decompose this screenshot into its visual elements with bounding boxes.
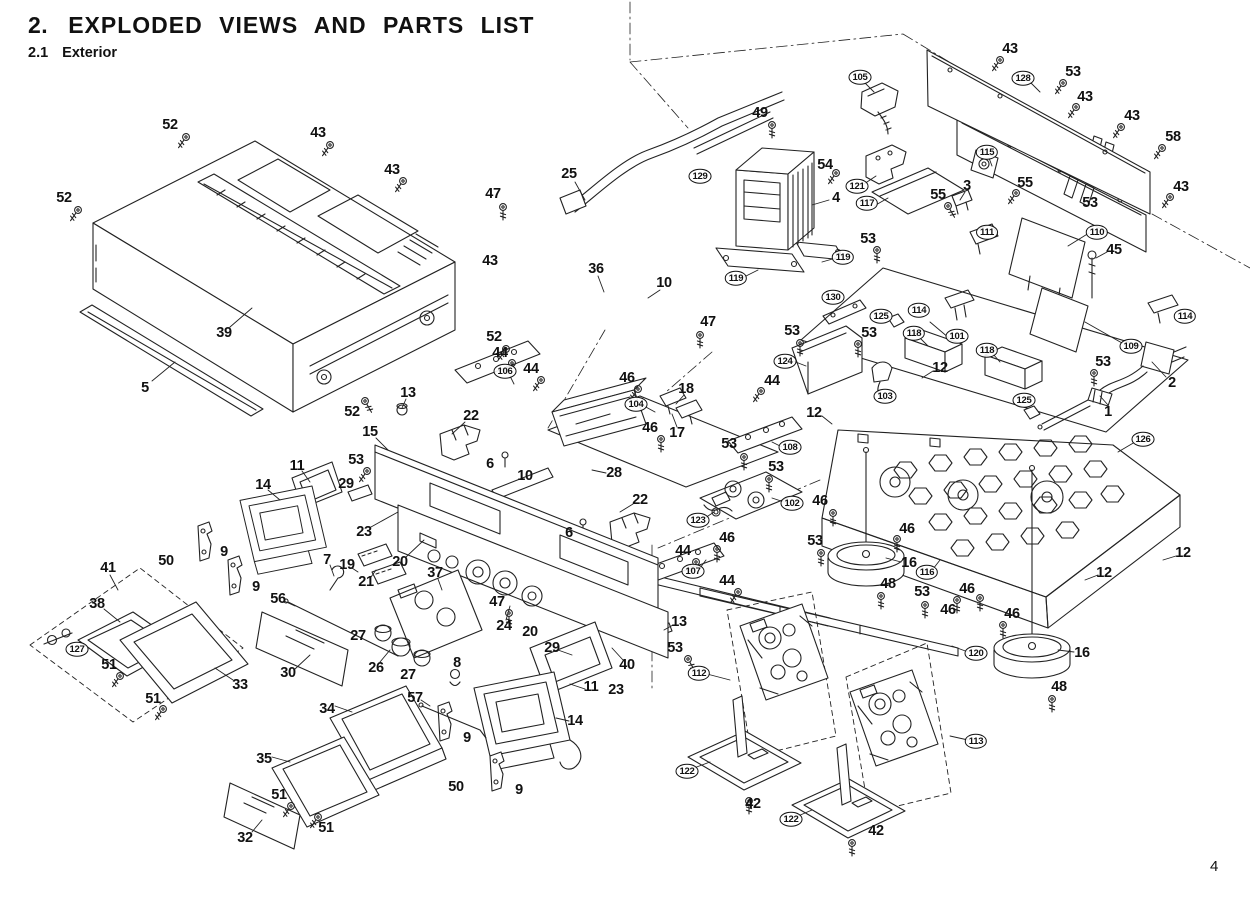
circled-part-number: 107 — [682, 564, 705, 579]
part-number: 9 — [252, 580, 260, 595]
circled-part-number: 113 — [965, 734, 987, 749]
circled-part-number: 112 — [688, 666, 710, 681]
part-number: 55 — [930, 188, 946, 203]
circled-part-number: 108 — [779, 440, 802, 455]
part-number: 14 — [567, 714, 583, 729]
subsection-title: Exterior — [62, 45, 117, 61]
circled-part-number: 114 — [1174, 309, 1196, 324]
part-number: 10 — [656, 276, 672, 291]
part-number: 49 — [752, 106, 768, 121]
circled-part-number: 111 — [976, 225, 998, 240]
part-number: 53 — [860, 232, 876, 247]
part-number: 27 — [350, 629, 366, 644]
part-number: 33 — [232, 678, 248, 693]
part-number: 40 — [619, 658, 635, 673]
part-number: 32 — [237, 831, 253, 846]
part-number: 53 — [784, 324, 800, 339]
page-header: 2. EXPLODED VIEWS AND PARTS LIST 2.1 Ext… — [28, 12, 534, 61]
circled-part-number: 110 — [1086, 225, 1108, 240]
part-number: 16 — [1074, 646, 1090, 661]
part-number: 37 — [427, 566, 443, 581]
part-number: 55 — [1017, 176, 1033, 191]
circled-part-number: 106 — [494, 364, 517, 379]
part-number: 56 — [270, 592, 286, 607]
part-number: 11 — [290, 459, 305, 474]
part-number: 35 — [256, 752, 272, 767]
part-number: 46 — [940, 603, 956, 618]
part-number: 12 — [1175, 546, 1191, 561]
part-number: 52 — [486, 330, 502, 345]
part-number: 44 — [675, 544, 691, 559]
part-number: 6 — [486, 457, 494, 472]
circled-part-number: 115 — [976, 145, 998, 160]
page-number: 4 — [1210, 858, 1218, 875]
part-number: 58 — [1165, 130, 1181, 145]
part-number: 39 — [216, 326, 232, 341]
part-number: 46 — [899, 522, 915, 537]
part-number: 43 — [1173, 180, 1189, 195]
circled-part-number: 122 — [780, 812, 803, 827]
part-number: 12 — [932, 361, 948, 376]
part-number: 51 — [271, 788, 287, 803]
part-number: 47 — [700, 315, 716, 330]
part-number: 21 — [358, 575, 374, 590]
part-number: 46 — [719, 531, 735, 546]
part-number: 7 — [323, 553, 331, 568]
part-number: 53 — [1095, 355, 1111, 370]
part-number: 44 — [523, 362, 539, 377]
part-number: 46 — [642, 421, 658, 436]
circled-part-number: 126 — [1132, 432, 1155, 447]
page-title: EXPLODED VIEWS AND PARTS LIST — [68, 12, 534, 39]
part-number: 43 — [1077, 90, 1093, 105]
circled-part-number: 125 — [870, 309, 893, 324]
part-number: 10 — [517, 469, 533, 484]
circled-part-number: 128 — [1012, 71, 1035, 86]
circled-part-number: 114 — [908, 303, 930, 318]
circled-part-number: 101 — [946, 329, 969, 344]
part-number: 45 — [1106, 243, 1122, 258]
part-number: 23 — [356, 525, 372, 540]
part-number: 46 — [812, 494, 828, 509]
part-number: 47 — [485, 187, 501, 202]
part-number: 9 — [463, 731, 471, 746]
part-number: 28 — [606, 466, 622, 481]
circled-part-number: 124 — [774, 354, 797, 369]
part-number: 24 — [496, 619, 512, 634]
part-number: 25 — [561, 167, 577, 182]
part-number: 15 — [362, 425, 378, 440]
part-number: 20 — [522, 625, 538, 640]
part-number: 51 — [318, 821, 334, 836]
subsection-number: 2.1 — [28, 45, 48, 61]
part-number: 1 — [1104, 405, 1112, 420]
part-number: 5 — [141, 381, 149, 396]
part-number: 18 — [678, 382, 694, 397]
part-number: 27 — [400, 668, 416, 683]
part-number: 2 — [1168, 376, 1176, 391]
part-number: 8 — [453, 656, 461, 671]
part-number: 11 — [584, 680, 599, 695]
part-number: 29 — [544, 641, 560, 656]
part-number: 53 — [721, 437, 737, 452]
part-number: 47 — [489, 595, 505, 610]
part-number: 4 — [832, 191, 840, 206]
part-number: 13 — [671, 615, 687, 630]
part-number: 38 — [89, 597, 105, 612]
part-number: 41 — [100, 561, 116, 576]
part-number: 48 — [1051, 680, 1067, 695]
part-number: 14 — [255, 478, 271, 493]
part-number: 53 — [768, 460, 784, 475]
part-number: 53 — [667, 641, 683, 656]
part-number: 9 — [515, 783, 523, 798]
part-number: 53 — [914, 585, 930, 600]
part-number: 43 — [1002, 42, 1018, 57]
circled-part-number: 118 — [976, 343, 998, 358]
part-number: 50 — [158, 554, 174, 569]
part-number: 17 — [669, 426, 685, 441]
part-number: 44 — [492, 346, 508, 361]
circled-part-number: 127 — [66, 642, 89, 657]
part-number: 43 — [310, 126, 326, 141]
part-number: 43 — [1124, 109, 1140, 124]
part-number: 9 — [220, 545, 228, 560]
part-number: 42 — [868, 824, 884, 839]
part-number: 53 — [807, 534, 823, 549]
part-number: 57 — [407, 691, 423, 706]
circled-part-number: 117 — [856, 196, 878, 211]
part-number: 52 — [56, 191, 72, 206]
circled-part-number: 129 — [689, 169, 712, 184]
part-number: 44 — [719, 574, 735, 589]
circled-part-number: 116 — [916, 565, 938, 580]
circled-part-number: 105 — [849, 70, 872, 85]
part-number: 48 — [880, 577, 896, 592]
part-number: 26 — [368, 661, 384, 676]
part-number: 52 — [162, 118, 178, 133]
circled-part-number: 102 — [781, 496, 804, 511]
part-number: 23 — [608, 683, 624, 698]
part-number: 12 — [806, 406, 822, 421]
part-number: 46 — [1004, 607, 1020, 622]
part-number: 42 — [745, 797, 761, 812]
section-number: 2. — [28, 12, 48, 39]
circled-part-number: 122 — [676, 764, 699, 779]
part-number: 12 — [1096, 566, 1112, 581]
circled-part-number: 119 — [725, 271, 747, 286]
part-number: 13 — [400, 386, 416, 401]
part-number: 36 — [588, 262, 604, 277]
part-number: 54 — [817, 158, 833, 173]
part-number: 29 — [338, 477, 354, 492]
circled-part-number: 118 — [903, 326, 925, 341]
part-number: 44 — [764, 374, 780, 389]
part-number: 53 — [1065, 65, 1081, 80]
part-number: 53 — [348, 453, 364, 468]
circled-part-number: 121 — [846, 179, 869, 194]
part-number: 19 — [339, 558, 355, 573]
part-number: 6 — [565, 526, 573, 541]
circled-part-number: 123 — [687, 513, 710, 528]
circled-part-number: 103 — [874, 389, 897, 404]
circled-part-number: 119 — [832, 250, 854, 265]
part-number: 22 — [463, 409, 479, 424]
part-number: 52 — [344, 405, 360, 420]
part-number: 46 — [959, 582, 975, 597]
part-number: 20 — [392, 555, 408, 570]
manual-page: 5243435239552132547495441291051211171191… — [0, 0, 1250, 900]
circled-part-number: 120 — [965, 646, 988, 661]
part-number: 22 — [632, 493, 648, 508]
part-number-labels: 5243435239552132547495441291051211171191… — [0, 0, 1250, 900]
part-number: 34 — [319, 702, 335, 717]
part-number: 53 — [861, 326, 877, 341]
part-number: 51 — [145, 692, 161, 707]
part-number: 30 — [280, 666, 296, 681]
circled-part-number: 125 — [1013, 393, 1036, 408]
part-number: 16 — [901, 556, 917, 571]
part-number: 51 — [101, 658, 117, 673]
part-number: 43 — [482, 254, 498, 269]
circled-part-number: 104 — [625, 397, 648, 412]
part-number: 50 — [448, 780, 464, 795]
circled-part-number: 109 — [1120, 339, 1143, 354]
part-number: 3 — [963, 179, 971, 194]
part-number: 43 — [384, 163, 400, 178]
part-number: 46 — [619, 371, 635, 386]
circled-part-number: 130 — [822, 290, 845, 305]
part-number: 53 — [1082, 196, 1098, 211]
